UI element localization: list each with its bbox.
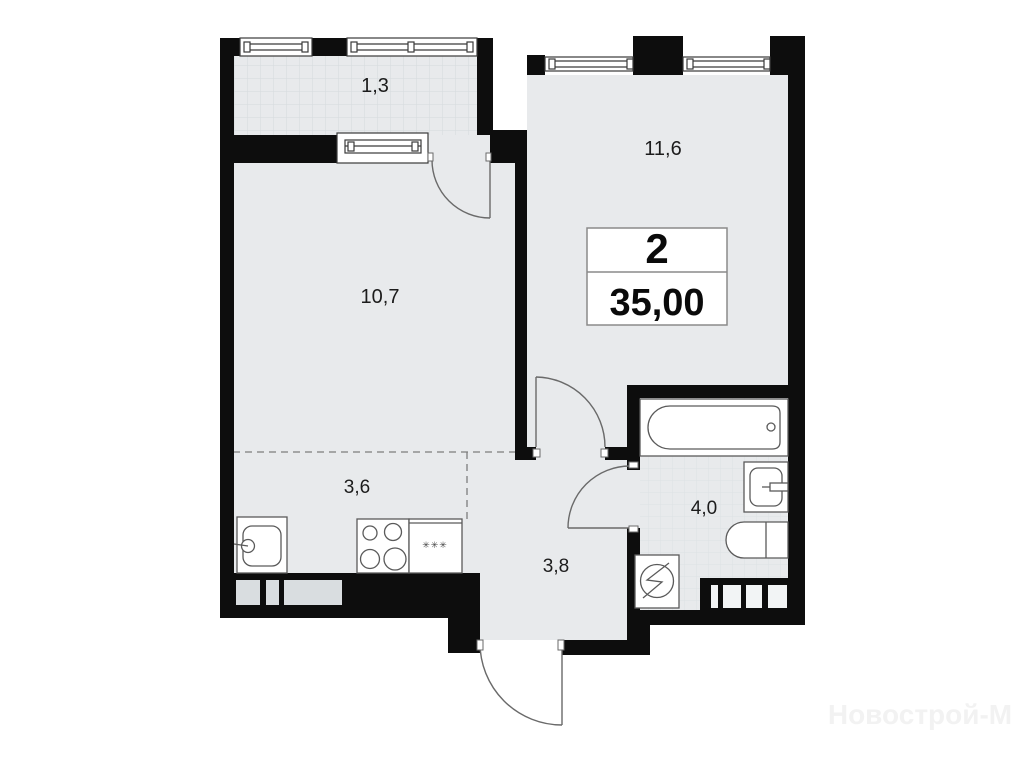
kitchen-cabinet: ✳✳✳ — [409, 519, 462, 573]
balcony-window-2 — [347, 38, 477, 56]
bathtub — [640, 399, 788, 456]
balcony-doorway-floor — [428, 135, 490, 163]
bedroom-label: 11,6 — [644, 138, 681, 160]
wall-bathroom-top — [627, 385, 788, 398]
kitchen-sink — [234, 517, 287, 573]
wall-niches — [236, 580, 342, 605]
living-room-label: 10,7 — [361, 286, 400, 308]
wall-entrance-left — [448, 573, 480, 653]
wall-central — [515, 163, 527, 447]
kitchen-stove — [357, 519, 409, 573]
bedroom-window-1 — [545, 36, 633, 75]
wall-below-balcony — [220, 135, 337, 163]
wall-bedroom-top-left — [527, 55, 547, 75]
wall-right — [788, 75, 805, 625]
wall-balcony-top-pier — [312, 38, 347, 56]
wall-bottom-connector — [627, 610, 650, 655]
wall-balcony-door-pier — [490, 130, 527, 163]
rooms-count-value: 2 — [645, 225, 668, 272]
wall-balcony-right — [477, 38, 493, 135]
hallway-label: 3,8 — [543, 556, 569, 577]
wall-bedroom-top-pier — [633, 36, 683, 75]
kitchen-label: 3,6 — [344, 477, 370, 498]
info-box: 2 35,00 — [587, 225, 727, 325]
balcony-label: 1,3 — [361, 75, 389, 97]
floorplan-drawing: ✳✳✳ 1,3 11,6 10,7 3,6 3,8 4,0 2 35,00 — [0, 0, 1024, 768]
wall-left — [220, 38, 234, 618]
wall-bathroom-left-upper — [627, 398, 640, 470]
entrance-door — [477, 640, 564, 725]
washbasin — [744, 462, 788, 512]
hallway-floor — [467, 447, 640, 640]
bathroom-label: 4,0 — [691, 498, 717, 519]
washing-machine — [635, 555, 679, 608]
toilet — [726, 522, 788, 558]
floorplan-canvas: ✳✳✳ 1,3 11,6 10,7 3,6 3,8 4,0 2 35,00 — [0, 0, 1024, 768]
total-area-value: 35,00 — [609, 282, 704, 324]
living-room-balcony-window — [337, 133, 428, 163]
bedroom-window-2 — [683, 36, 770, 75]
wall-top-right-corner — [767, 36, 805, 75]
balcony-window-1 — [240, 38, 312, 56]
cabinet-marks: ✳✳✳ — [422, 540, 448, 550]
watermark-logo: Новострой-М — [828, 699, 1012, 730]
wall-balcony-top-left — [220, 38, 240, 56]
